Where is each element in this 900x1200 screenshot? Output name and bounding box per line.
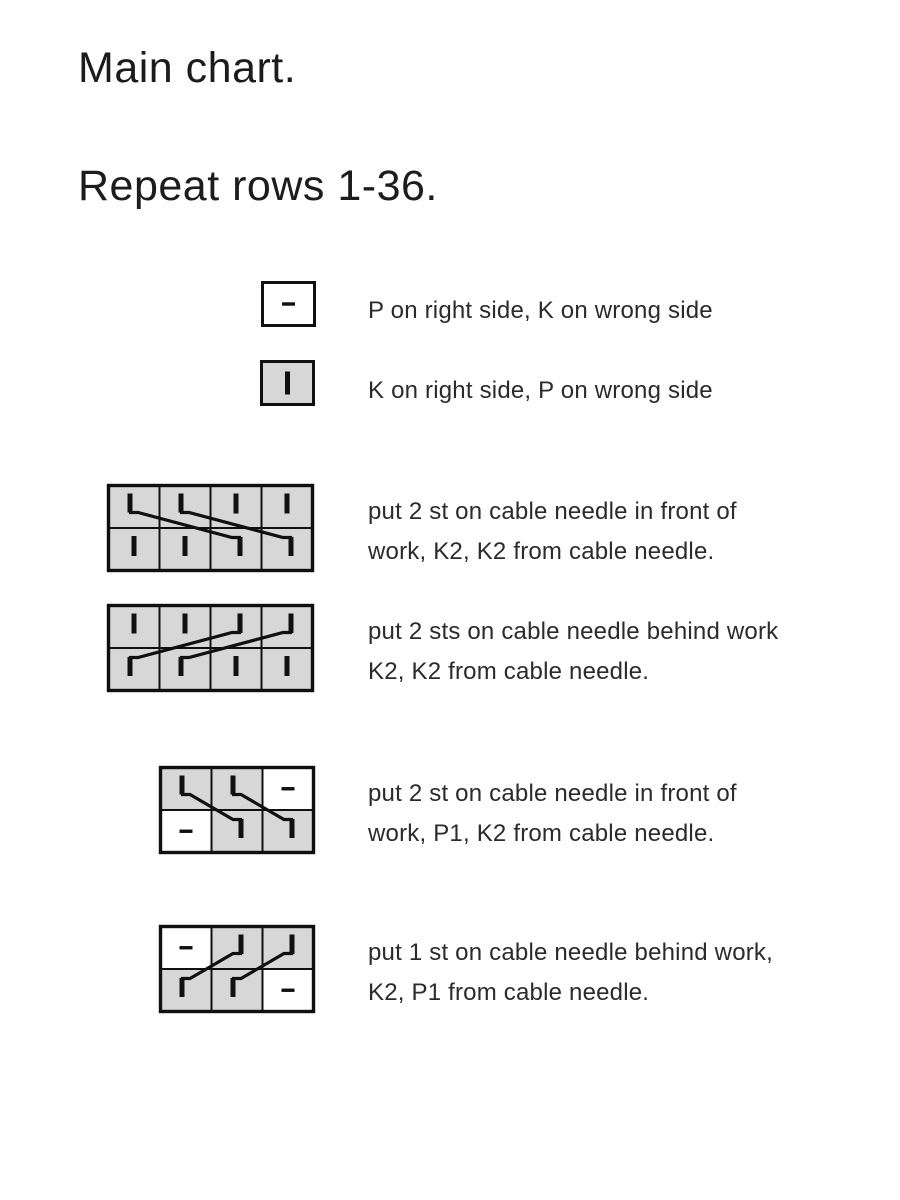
purl-symbol xyxy=(260,280,317,328)
legend-text-purl: P on right side, K on wrong side xyxy=(368,291,713,331)
cable-4-back-symbol xyxy=(106,603,315,693)
cable-4-front-symbol xyxy=(106,483,315,573)
legend-text-cable-4-back: put 2 sts on cable needle behind work K2… xyxy=(368,612,778,692)
legend-line: put 2 st on cable needle in front of xyxy=(368,492,737,532)
legend-text-cable-3-front-purl: put 2 st on cable needle in front of wor… xyxy=(368,774,737,854)
legend-line: put 1 st on cable needle behind work, xyxy=(368,933,773,973)
cable-3-back-purl-symbol xyxy=(158,924,316,1014)
legend-text-cable-3-back-purl: put 1 st on cable needle behind work, K2… xyxy=(368,933,773,1013)
cable-3-front-purl-symbol xyxy=(158,765,316,855)
page-title: Main chart. xyxy=(78,44,296,92)
legend-line: put 2 st on cable needle in front of xyxy=(368,774,737,814)
legend-line: K2, K2 from cable needle. xyxy=(368,652,778,692)
legend-line: K2, P1 from cable needle. xyxy=(368,973,773,1013)
pattern-page: Main chart. Repeat rows 1-36. P on right… xyxy=(0,0,900,1200)
knit-symbol xyxy=(259,359,316,407)
legend-line: put 2 sts on cable needle behind work xyxy=(368,612,778,652)
legend-line: work, P1, K2 from cable needle. xyxy=(368,814,737,854)
legend-line: work, K2, K2 from cable needle. xyxy=(368,532,737,572)
legend-line: K on right side, P on wrong side xyxy=(368,371,713,411)
page-subtitle: Repeat rows 1-36. xyxy=(78,162,438,210)
legend-text-cable-4-front: put 2 st on cable needle in front of wor… xyxy=(368,492,737,572)
legend-line: P on right side, K on wrong side xyxy=(368,291,713,331)
legend-text-knit: K on right side, P on wrong side xyxy=(368,371,713,411)
